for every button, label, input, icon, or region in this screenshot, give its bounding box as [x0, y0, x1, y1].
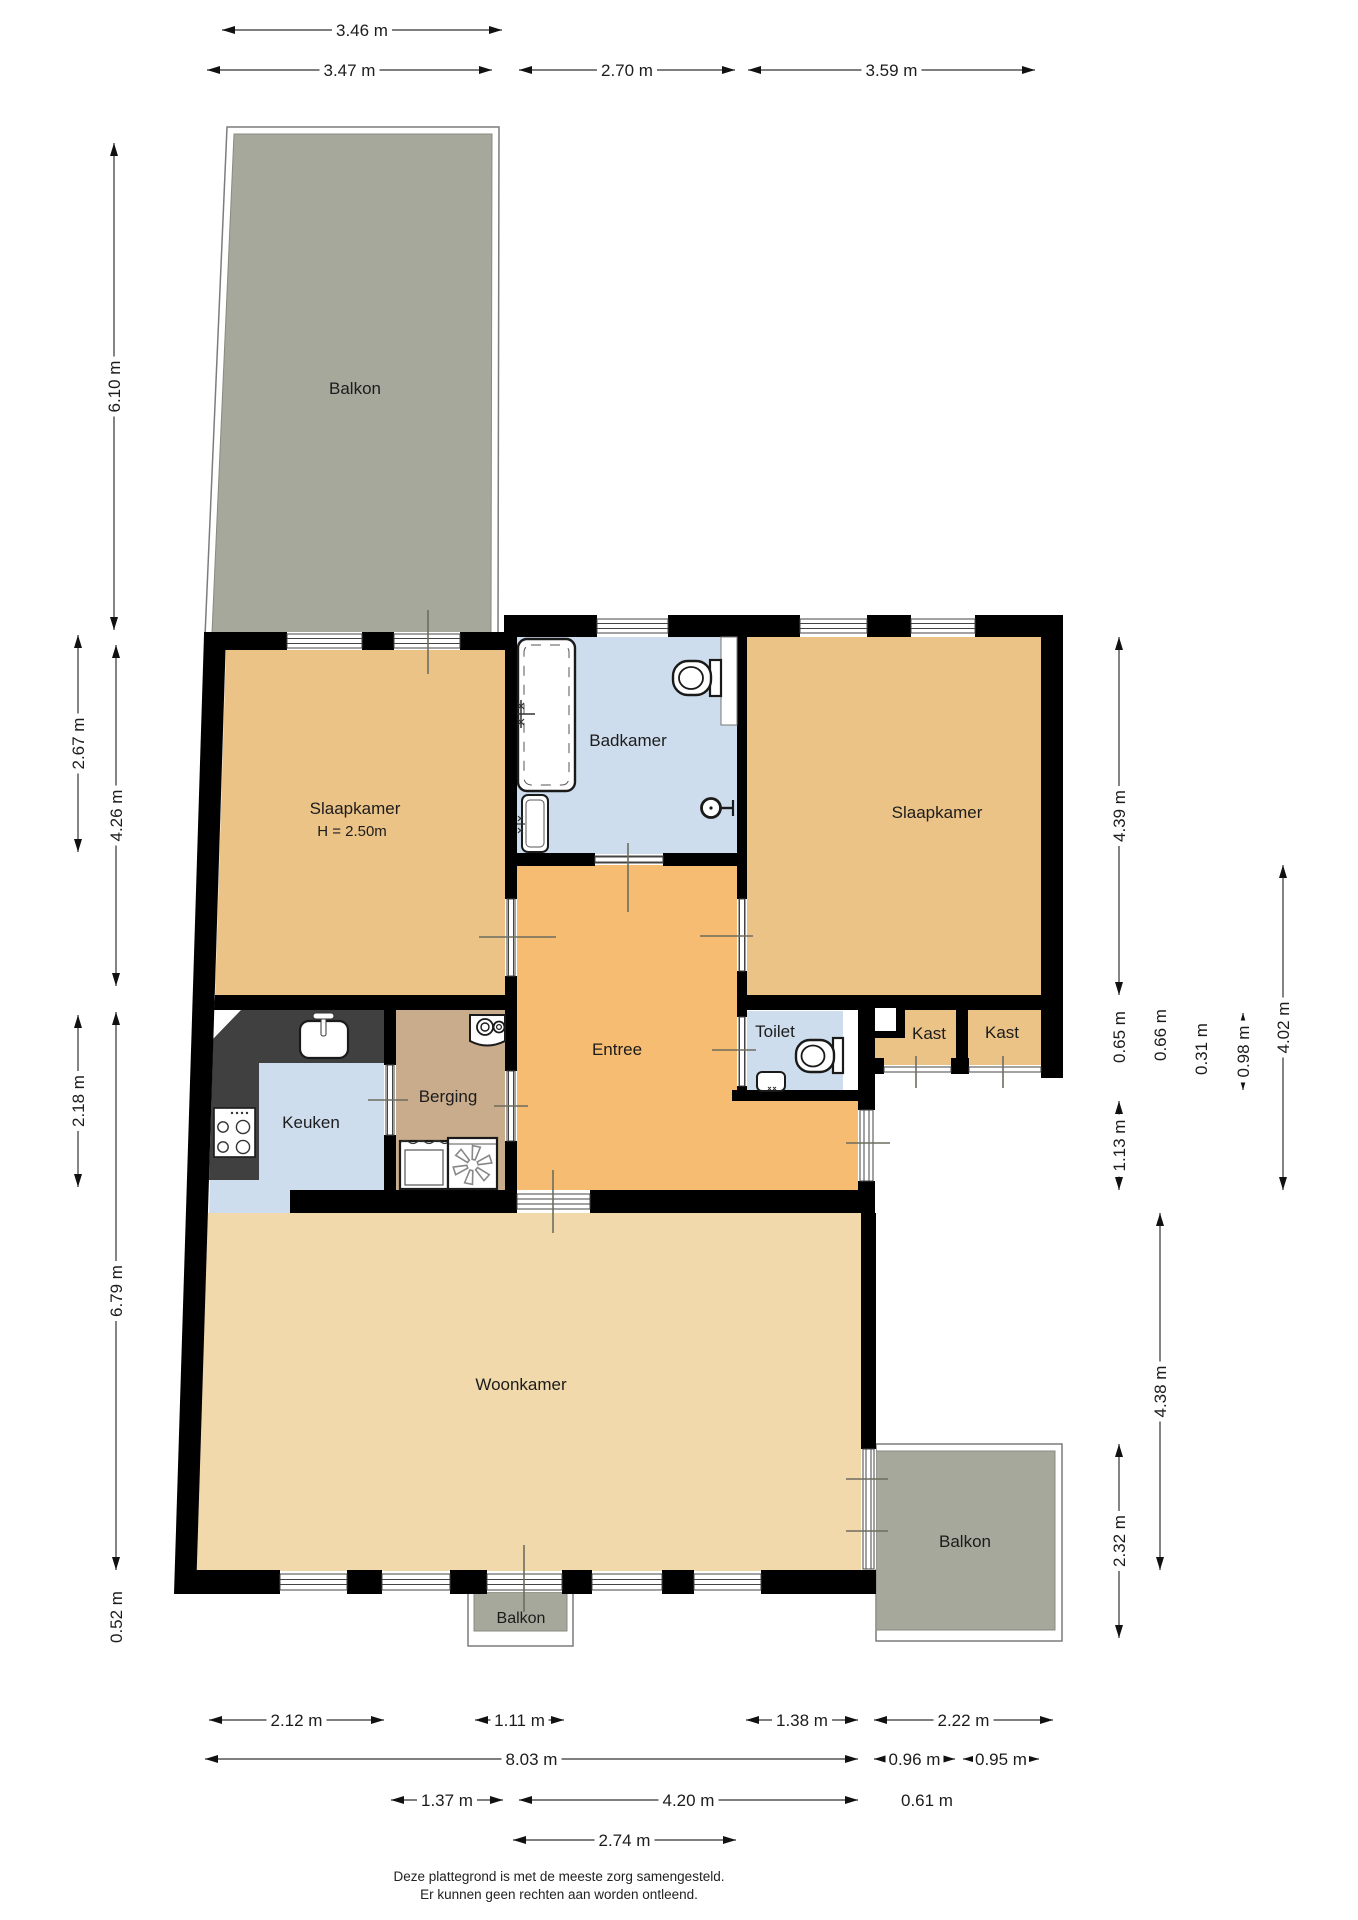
svg-text:0.31 m: 0.31 m: [1192, 1023, 1211, 1075]
svg-text:Kast: Kast: [912, 1024, 946, 1043]
svg-text:Berging: Berging: [419, 1087, 478, 1106]
svg-text:6.10 m: 6.10 m: [105, 361, 124, 413]
svg-text:0.52 m: 0.52 m: [107, 1591, 126, 1643]
svg-text:2.67 m: 2.67 m: [69, 718, 88, 770]
svg-text:4.26 m: 4.26 m: [107, 790, 126, 842]
svg-text:1.38 m: 1.38 m: [776, 1711, 828, 1730]
svg-text:1.11 m: 1.11 m: [494, 1711, 545, 1730]
svg-text:4.02 m: 4.02 m: [1274, 1002, 1293, 1054]
svg-text:Slaapkamer: Slaapkamer: [310, 799, 401, 818]
svg-text:3.59 m: 3.59 m: [866, 61, 918, 80]
svg-text:0.95 m: 0.95 m: [975, 1750, 1027, 1769]
svg-text:Kast: Kast: [985, 1023, 1019, 1042]
svg-text:4.39 m: 4.39 m: [1110, 790, 1129, 842]
svg-text:4.38 m: 4.38 m: [1151, 1366, 1170, 1418]
svg-text:0.96 m: 0.96 m: [889, 1750, 941, 1769]
svg-text:2.22 m: 2.22 m: [938, 1711, 990, 1730]
svg-text:2.12 m: 2.12 m: [271, 1711, 323, 1730]
svg-text:Er kunnen geen rechten aan wor: Er kunnen geen rechten aan worden ontlee…: [420, 1887, 698, 1902]
svg-text:0.98 m: 0.98 m: [1234, 1026, 1253, 1078]
svg-text:0.66 m: 0.66 m: [1151, 1009, 1170, 1061]
svg-text:Keuken: Keuken: [282, 1113, 340, 1132]
svg-text:3.46 m: 3.46 m: [336, 21, 388, 40]
svg-text:2.32 m: 2.32 m: [1110, 1515, 1129, 1567]
svg-text:4.20 m: 4.20 m: [663, 1791, 715, 1810]
svg-text:3.47 m: 3.47 m: [324, 61, 376, 80]
svg-text:1.37 m: 1.37 m: [421, 1791, 473, 1810]
svg-text:2.74 m: 2.74 m: [599, 1831, 651, 1850]
svg-text:8.03 m: 8.03 m: [506, 1750, 558, 1769]
svg-text:Woonkamer: Woonkamer: [475, 1375, 567, 1394]
svg-text:2.18 m: 2.18 m: [69, 1075, 88, 1127]
svg-text:0.61 m: 0.61 m: [901, 1791, 953, 1810]
svg-text:Badkamer: Badkamer: [589, 731, 667, 750]
svg-text:Deze plattegrond is met de mee: Deze plattegrond is met de meeste zorg s…: [394, 1869, 725, 1884]
svg-text:Balkon: Balkon: [497, 1610, 546, 1627]
svg-text:2.70 m: 2.70 m: [601, 61, 653, 80]
svg-text:0.65 m: 0.65 m: [1110, 1011, 1129, 1063]
svg-text:Slaapkamer: Slaapkamer: [892, 803, 983, 822]
svg-text:H = 2.50m: H = 2.50m: [317, 823, 387, 840]
svg-text:Balkon: Balkon: [939, 1532, 991, 1551]
svg-text:1.13 m: 1.13 m: [1110, 1120, 1129, 1172]
svg-text:Balkon: Balkon: [329, 379, 381, 398]
svg-text:Entree: Entree: [592, 1040, 642, 1059]
svg-text:Toilet: Toilet: [755, 1022, 795, 1041]
svg-text:6.79 m: 6.79 m: [107, 1265, 126, 1317]
